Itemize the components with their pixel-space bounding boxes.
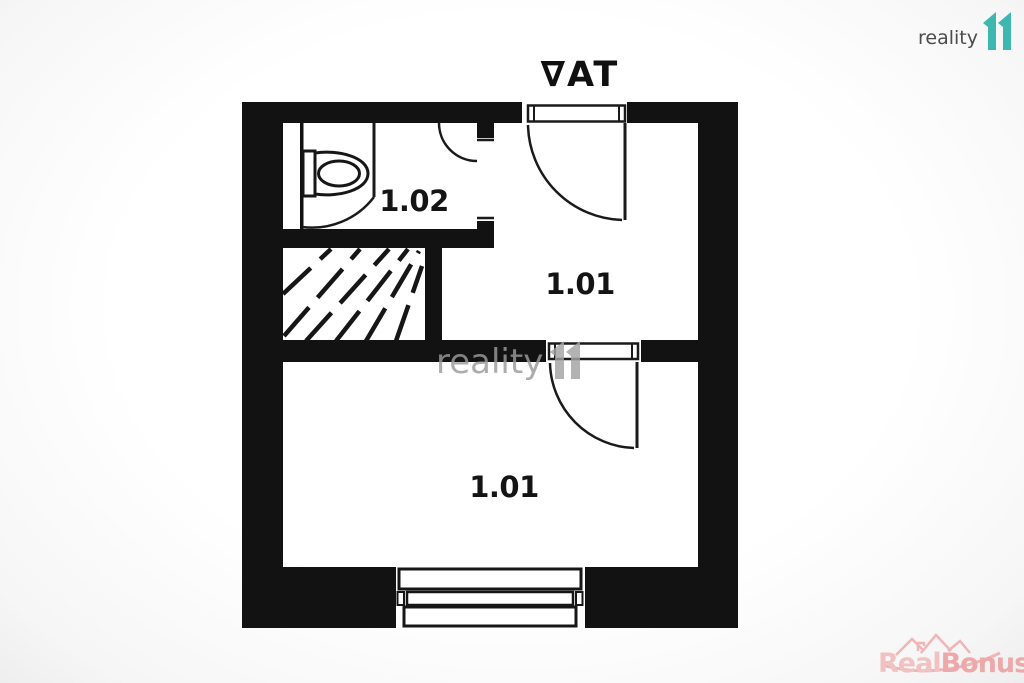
room-label-main: 1.01 (469, 470, 539, 504)
bottom-window (398, 569, 583, 626)
toilet-bowl (319, 161, 360, 186)
window-sill-inner (399, 569, 581, 589)
realbonus-watermark: RealBonus.cz (878, 621, 1018, 683)
center-watermark-text: reality (436, 345, 543, 379)
entrance-door (528, 106, 625, 221)
room-label-wc: 1.02 (379, 184, 449, 218)
wc-door-swing-arc (302, 197, 374, 228)
reality11-logo: reality (918, 12, 1015, 50)
wall-wc-partition-bottom (477, 221, 494, 233)
window-sill-outer (404, 607, 576, 626)
center-watermark: reality (436, 341, 584, 379)
wall-bottom-left (242, 567, 396, 628)
wall-bottom-right (585, 567, 738, 628)
entrance-door-swing-arc (528, 125, 622, 220)
wall-under-wc (242, 229, 494, 248)
floorplan-image: ∇AT 1.02 1.01 1.01 reality reality (0, 0, 1024, 683)
toilet-tank (303, 151, 315, 196)
entrance-door-frame (528, 106, 625, 122)
wc-corner-arc (439, 123, 477, 161)
wall-right (698, 102, 738, 628)
wall-stairs-right (425, 248, 442, 340)
entrance-label: ∇AT (525, 55, 635, 95)
realbonus-text: RealBonus.cz (878, 650, 1018, 677)
room-label-upper: 1.01 (545, 267, 615, 301)
wall-middle-right (641, 340, 738, 362)
wall-left (242, 102, 283, 628)
reality11-logo-text: reality (918, 29, 978, 50)
wall-wc-partition-top (477, 123, 494, 138)
stairs-icon (283, 249, 422, 341)
realbonus-text-bonus: Bonus (941, 648, 1024, 679)
wc-partition-door (477, 140, 494, 218)
center-watermark-mark-icon (550, 341, 584, 379)
realbonus-text-real: Real (878, 648, 941, 679)
reality11-logo-mark-icon (983, 12, 1015, 50)
toilet-icon (303, 151, 368, 196)
window-glazing (407, 592, 573, 605)
wall-top-left (242, 102, 522, 123)
